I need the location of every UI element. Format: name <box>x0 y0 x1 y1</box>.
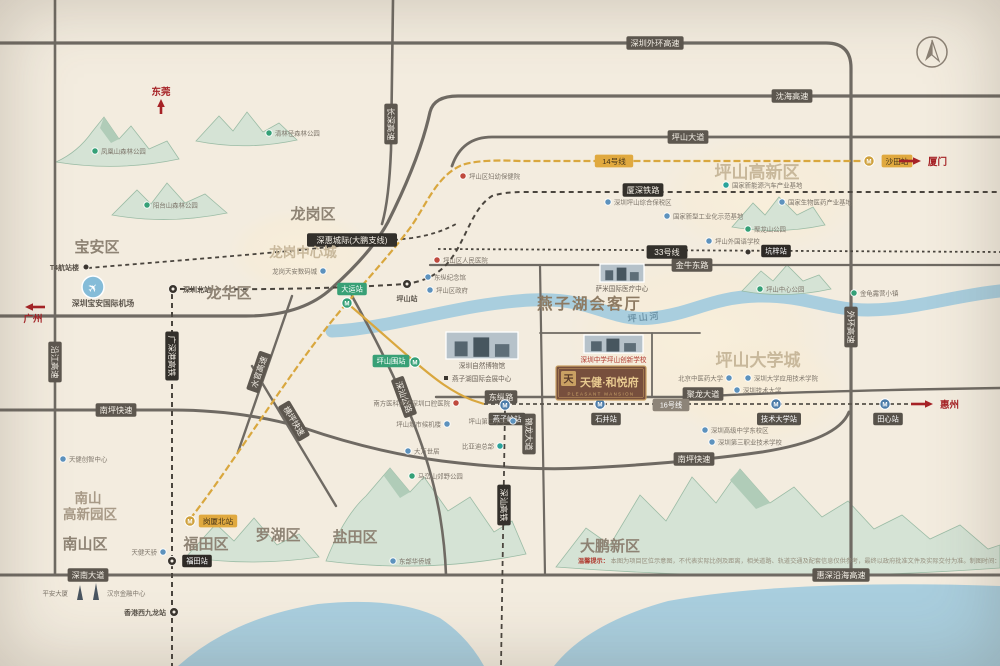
poi-6: 坪山区妇幼保健院 <box>460 171 521 180</box>
landmark-caption: 萨米国际医疗中心 <box>596 284 649 293</box>
poi-label: 坪山外国语学校 <box>715 236 760 245</box>
road-label-2: 坪山大道 <box>668 130 709 143</box>
svg-text:坪山大道: 坪山大道 <box>672 132 705 142</box>
svg-text:福田站: 福田站 <box>186 557 208 566</box>
poi-17: 深圳大学应用技术学院 <box>745 373 819 382</box>
poi-label: 国家生物医药产业基地 <box>788 197 853 206</box>
road-label-1: 沈海高速 <box>772 89 813 102</box>
poi-10: 国家生物医药产业基地 <box>779 197 853 206</box>
svg-text:南坪快速: 南坪快速 <box>100 405 133 415</box>
svg-text:广深港高铁: 广深港高铁 <box>167 336 177 377</box>
poi-label: 龙岗天安数码城 <box>272 266 317 275</box>
region-label-12: 坪山大学城 <box>716 350 801 370</box>
station-badge: 技术大学站 <box>757 413 801 425</box>
poi-green-icon <box>92 148 98 154</box>
landmark-3: 深圳中学坪山创新学校 <box>581 335 647 364</box>
road-label-12: 外环高速 <box>844 307 857 348</box>
svg-text:田心站: 田心站 <box>877 415 899 424</box>
station-dot-icon <box>745 249 751 255</box>
svg-text:石井站: 石井站 <box>595 415 617 424</box>
svg-text:M: M <box>344 300 349 307</box>
poi-blue-icon <box>605 199 611 205</box>
svg-text:厦深铁路: 厦深铁路 <box>627 185 660 195</box>
poi-label: 东部华侨城 <box>399 556 432 565</box>
poi-blue-icon <box>745 375 751 381</box>
region-label-11: 坪山高新区 <box>715 162 800 182</box>
poi-green-icon <box>745 226 751 232</box>
poi-30: 平安大厦 <box>42 588 68 597</box>
poi-blue-icon <box>444 421 450 427</box>
road-label-10: 长深高速 <box>384 104 397 145</box>
svg-text:坑梓站: 坑梓站 <box>765 247 787 256</box>
poi-green-icon <box>144 202 150 208</box>
poi-red-icon <box>460 173 466 179</box>
poi-label: 北京中医药大学 <box>678 373 723 382</box>
road-label-17: 厦深铁路 <box>623 183 664 196</box>
poi-blue-icon <box>405 448 411 454</box>
road-label-7: 南坪快速 <box>674 452 715 465</box>
station-label: T4航站楼 <box>50 263 79 272</box>
poi-blue-icon <box>425 274 431 280</box>
region-label-5: 罗湖区 <box>255 527 300 544</box>
poi-19: 深圳高级中学东校区 <box>702 425 769 434</box>
road-label-11: 沿江高速 <box>48 342 61 383</box>
poi-blue-icon <box>160 549 166 555</box>
poi-teal-icon <box>723 182 729 188</box>
svg-text:M: M <box>412 359 417 366</box>
disclaimer-prefix: 温馨提示： <box>578 557 609 565</box>
poi-green-icon <box>266 130 272 136</box>
poi-label: 天健创智中心 <box>69 454 108 463</box>
svg-text:14号线: 14号线 <box>602 156 626 166</box>
project-seal-char: 天 <box>564 374 575 386</box>
svg-text:长深高速: 长深高速 <box>386 108 396 141</box>
svg-text:16号线: 16号线 <box>660 401 682 410</box>
poi-label: 坪山区妇幼保健院 <box>469 171 521 180</box>
station-5: M岗厦北站 <box>185 515 237 528</box>
road-label-18: 广深港高铁 <box>165 332 178 381</box>
poi-label: 坪山区政府 <box>436 285 469 294</box>
svg-text:沈海高速: 沈海高速 <box>776 91 809 101</box>
svg-text:惠深沿海高速: 惠深沿海高速 <box>816 570 865 580</box>
station-badge: 田心站 <box>873 413 903 425</box>
svg-text:岗厦北站: 岗厦北站 <box>203 516 234 526</box>
svg-text:坪山围站: 坪山围站 <box>377 357 406 366</box>
landmark-caption: 燕子湖国际会展中心 <box>452 374 512 383</box>
poi-blue-icon <box>320 268 326 274</box>
project-logo: 天 天健·和悦府 PLEASANT MANSION <box>556 366 646 400</box>
road-label-3: 金牛东路 <box>672 258 713 271</box>
poi-label: 深圳高级中学东校区 <box>711 425 769 434</box>
arrow-label: 广州 <box>23 313 42 325</box>
landmark-caption: 深圳中学坪山创新学校 <box>581 355 647 364</box>
svg-text:深圳外环高速: 深圳外环高速 <box>630 38 679 48</box>
station-dot-icon <box>83 264 89 270</box>
arrow-label: 东莞 <box>151 86 171 98</box>
svg-text:技术大学站: 技术大学站 <box>761 415 797 424</box>
landmark-bullet <box>444 376 448 380</box>
poi-label: 坪山中心公园 <box>766 284 804 293</box>
svg-text:深惠城际(大鹏支线): 深惠城际(大鹏支线) <box>317 235 388 245</box>
disclaimer-text: 本图为项目区位示意图，不代表实际比例及距离，相关道路、轨道交通及配套信息仅供参考… <box>611 557 1000 565</box>
station-3: 福田站 <box>167 555 211 567</box>
poi-blue-icon <box>709 439 715 445</box>
station-label: 坪山站 <box>397 294 418 303</box>
poi-31: 汉京金融中心 <box>107 588 146 597</box>
region-label-13: 燕子湖会客厅 <box>537 294 642 313</box>
poi-green-icon <box>757 286 763 292</box>
poi-label: 阳台山森林公园 <box>153 200 198 209</box>
station-badge: 福田站 <box>182 555 212 567</box>
svg-text:沿江高速: 沿江高速 <box>50 346 60 379</box>
poi-label: 深圳坪山综合保税区 <box>614 197 672 206</box>
poi-blue-icon <box>702 427 708 433</box>
svg-text:33号线: 33号线 <box>654 247 679 257</box>
poi-blue-icon <box>726 375 732 381</box>
road-label-0: 深圳外环高速 <box>626 36 683 49</box>
region-label-6: 盐田区 <box>332 528 377 546</box>
poi-label: 坪山区人民医院 <box>443 255 488 264</box>
zone-glow-1 <box>660 134 860 258</box>
poi-blue-icon <box>779 199 785 205</box>
poi-label: 聚龙山公园 <box>754 224 786 233</box>
svg-text:东纵路: 东纵路 <box>489 392 514 402</box>
poi-teal-icon <box>497 443 503 449</box>
arrow-label: 惠州 <box>940 399 959 411</box>
poi-label: 平安大厦 <box>42 588 68 597</box>
road-label-20: 深汕高铁 <box>497 485 510 526</box>
poi-label: 坪山城市候机楼 <box>396 419 441 428</box>
poi-blue-icon <box>60 456 66 462</box>
poi-green-icon <box>851 290 857 296</box>
svg-text:锦龙大道: 锦龙大道 <box>524 418 534 451</box>
poi-11: 国家新型工业化示范基地 <box>664 211 744 220</box>
road-label-21: 14号线 <box>595 155 633 168</box>
disclaimer: 温馨提示： 本图为项目区位示意图，不代表实际比例及距离，相关道路、轨道交通及配套… <box>578 557 1000 565</box>
station-label: 香港西九龙站 <box>123 608 166 617</box>
poi-label: 比亚迪总部 <box>462 441 495 450</box>
poi-label: 深圳技术大学 <box>743 385 782 394</box>
poi-label: 深圳第三职业技术学校 <box>718 437 783 446</box>
project-name-en: PLEASANT MANSION <box>568 392 635 397</box>
landmark-2: 燕子湖国际会展中心 <box>444 374 512 383</box>
road-label-5: 聚龙大道 <box>683 387 724 400</box>
map-canvas: 深圳外环高速沈海高速坪山大道金牛东路东纵路聚龙大道南坪快速南坪快速深南大道惠深沿… <box>0 0 1000 666</box>
svg-text:金牛东路: 金牛东路 <box>676 260 709 270</box>
svg-text:深汕高铁: 深汕高铁 <box>499 489 509 522</box>
svg-text:聚龙大道: 聚龙大道 <box>687 389 720 399</box>
svg-text:M: M <box>597 401 602 408</box>
poi-label: 凤凰山森林公园 <box>101 146 146 155</box>
svg-text:M: M <box>187 518 192 525</box>
poi-red-icon <box>453 400 459 406</box>
poi-label: 东纵纪念馆 <box>434 272 466 281</box>
station-badge: 岗厦北站 <box>199 515 237 528</box>
svg-text:M: M <box>866 158 871 165</box>
landmark-0: 萨米国际医疗中心 <box>596 264 649 293</box>
poi-blue-icon <box>427 287 433 293</box>
region-label-8: 南山 <box>75 490 102 506</box>
arrow-label: 厦门 <box>928 156 947 168</box>
poi-7: 深圳坪山综合保税区 <box>605 197 672 206</box>
station-badge: 坑梓站 <box>761 245 791 257</box>
poi-label: 天健天骄 <box>131 547 157 556</box>
station-7: M坪山围站 <box>373 355 421 367</box>
poi-label: 清林径森林公园 <box>275 128 320 137</box>
poi-blue-icon <box>510 418 516 424</box>
svg-text:M: M <box>502 402 507 409</box>
region-label-2: 龙华区 <box>205 284 251 302</box>
svg-text:大运站: 大运站 <box>341 285 363 294</box>
poi-label: 坪山第二小学 <box>469 416 508 425</box>
region-label-1: 龙岗区 <box>289 205 335 223</box>
road-label-22: 33号线 <box>647 245 688 258</box>
poi-blue-icon <box>390 558 396 564</box>
road-label-6: 南坪快速 <box>96 403 137 416</box>
landmark-caption: 深圳自然博物馆 <box>459 361 506 370</box>
project-name: 天健·和悦府 <box>580 375 639 389</box>
region-label-0: 宝安区 <box>74 238 119 256</box>
region-label-3: 南山区 <box>62 535 107 553</box>
region-label-7: 大鹏新区 <box>580 537 640 555</box>
airport-label: 深圳宝安国际机场 <box>72 298 135 308</box>
road-label-8: 深南大道 <box>68 568 109 581</box>
station-badge: 石井站 <box>591 413 621 425</box>
poi-blue-icon <box>734 387 740 393</box>
poi-label: 马峦山郊野公园 <box>418 471 463 480</box>
poi-label: 深圳大学应用技术学院 <box>754 373 819 382</box>
svg-text:外环高速: 外环高速 <box>846 311 856 344</box>
direction-arrow-1: 广州 <box>23 303 45 325</box>
region-label-9: 高新园区 <box>63 506 117 522</box>
poi-blue-icon <box>706 238 712 244</box>
poi-21: 南方医科大学深圳口腔医院 <box>373 398 459 407</box>
poi-blue-icon <box>664 213 670 219</box>
region-label-4: 福田区 <box>182 535 228 553</box>
station-badge: 坪山围站 <box>373 355 410 367</box>
pingshan-location-map: 深圳外环高速沈海高速坪山大道金牛东路东纵路聚龙大道南坪快速南坪快速深南大道惠深沿… <box>0 0 1000 666</box>
svg-text:M: M <box>773 401 778 408</box>
road-label-9: 惠深沿海高速 <box>812 568 869 581</box>
road-label-23: 16号线 <box>653 399 690 411</box>
svg-text:深南大道: 深南大道 <box>72 570 105 580</box>
svg-text:南坪快速: 南坪快速 <box>678 454 711 464</box>
poi-label: 汉京金融中心 <box>107 588 146 597</box>
poi-20: 深圳第三职业技术学校 <box>709 437 783 446</box>
poi-label: 南方医科大学深圳口腔医院 <box>373 398 450 407</box>
region-label-10: 龙岗中心城 <box>268 244 337 260</box>
poi-red-icon <box>434 257 440 263</box>
poi-label: 大万世居 <box>414 446 440 455</box>
station-badge: 大运站 <box>337 283 367 295</box>
poi-label: 国家新型工业化示范基地 <box>673 211 744 220</box>
poi-label: 金龟露营小镇 <box>860 288 899 297</box>
poi-green-icon <box>409 473 415 479</box>
svg-text:M: M <box>882 401 887 408</box>
